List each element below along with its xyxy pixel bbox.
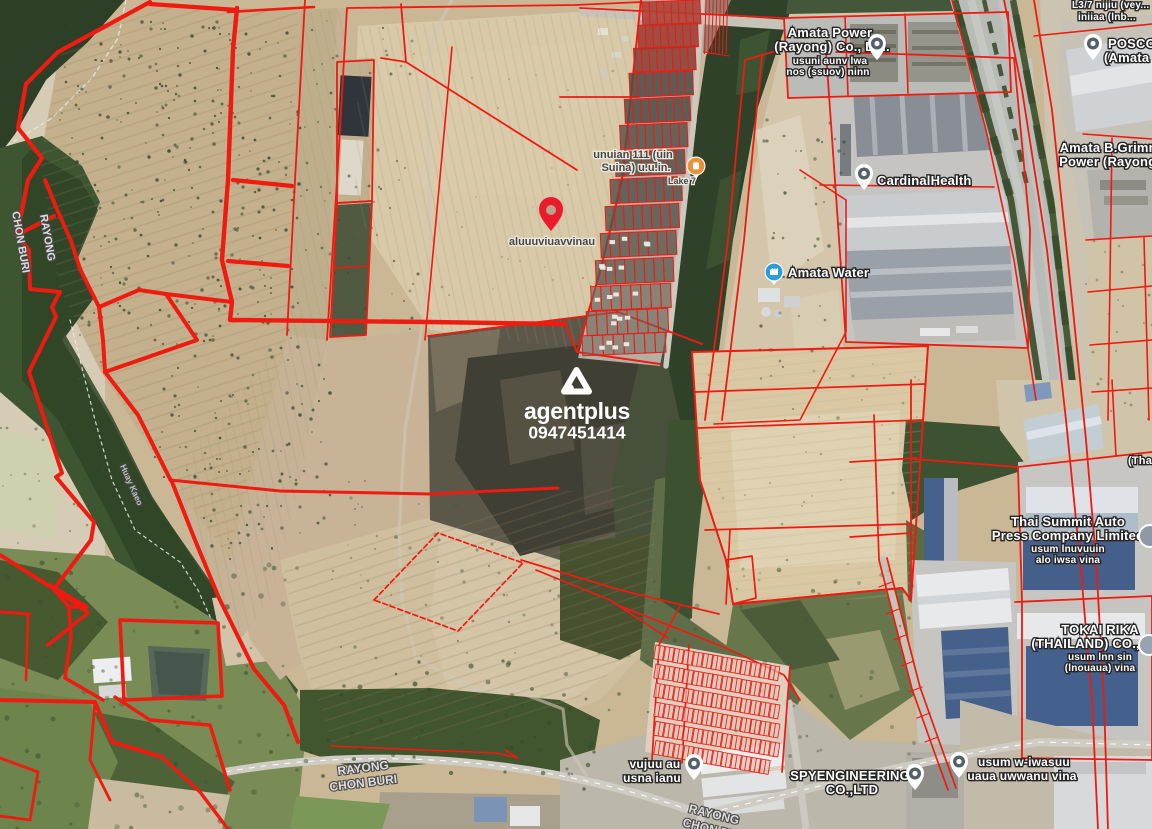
svg-text:Thai Summit Auto: Thai Summit Auto (1011, 514, 1125, 529)
svg-text:(Tha: (Tha (1128, 455, 1152, 467)
svg-text:iniiaa (lnb...: iniiaa (lnb... (1078, 12, 1136, 23)
svg-text:CardinalHealth: CardinalHealth (877, 173, 972, 188)
svg-text:usum w-iwasuu: usum w-iwasuu (978, 755, 1070, 769)
svg-text:0947451414: 0947451414 (528, 423, 626, 443)
svg-text:usum lnuvuuin: usum lnuvuuin (1031, 544, 1105, 555)
svg-text:unuian 111 (uin: unuian 111 (uin (593, 149, 673, 161)
svg-text:Power (Rayong): Power (Rayong) (1059, 154, 1152, 169)
svg-text:usuni aunv lwa: usuni aunv lwa (793, 56, 868, 67)
svg-text:Lake 7: Lake 7 (668, 176, 696, 186)
svg-text:Amata Water: Amata Water (788, 265, 869, 280)
svg-text:(THAILAND) CO., LTD: (THAILAND) CO., LTD (1031, 636, 1152, 651)
svg-text:uaua uwwanu vina: uaua uwwanu vina (967, 769, 1076, 783)
svg-text:vujuu au: vujuu au (630, 757, 681, 771)
svg-text:Suina) u.u.in.: Suina) u.u.in. (601, 162, 670, 174)
svg-text:L3/7 nijiu (vey...: L3/7 nijiu (vey... (1072, 0, 1149, 11)
svg-text:CO.,LTD: CO.,LTD (826, 782, 878, 797)
svg-text:Amata B.Grimm: Amata B.Grimm (1060, 140, 1152, 155)
svg-text:(lnouaua) vina: (lnouaua) vina (1065, 663, 1136, 674)
svg-text:alo iwsa vina: alo iwsa vina (1036, 555, 1101, 566)
svg-text:nos (ssuov) ninn: nos (ssuov) ninn (786, 67, 869, 78)
svg-text:POSCO: POSCO (1108, 36, 1152, 51)
svg-text:agentplus: agentplus (524, 398, 630, 424)
svg-text:aluuuviuavvinau: aluuuviuavvinau (509, 236, 595, 248)
svg-text:Amata Power: Amata Power (788, 25, 873, 40)
svg-text:Press Company Limited: Press Company Limited (992, 528, 1144, 543)
svg-text:(Amata: (Amata (1104, 50, 1150, 65)
svg-text:TOKAI RIKA: TOKAI RIKA (1061, 622, 1139, 637)
svg-text:usna ianu: usna ianu (623, 771, 681, 785)
svg-text:usum lnn sin: usum lnn sin (1068, 652, 1132, 663)
svg-text:SPYENGINEERING: SPYENGINEERING (790, 768, 910, 783)
